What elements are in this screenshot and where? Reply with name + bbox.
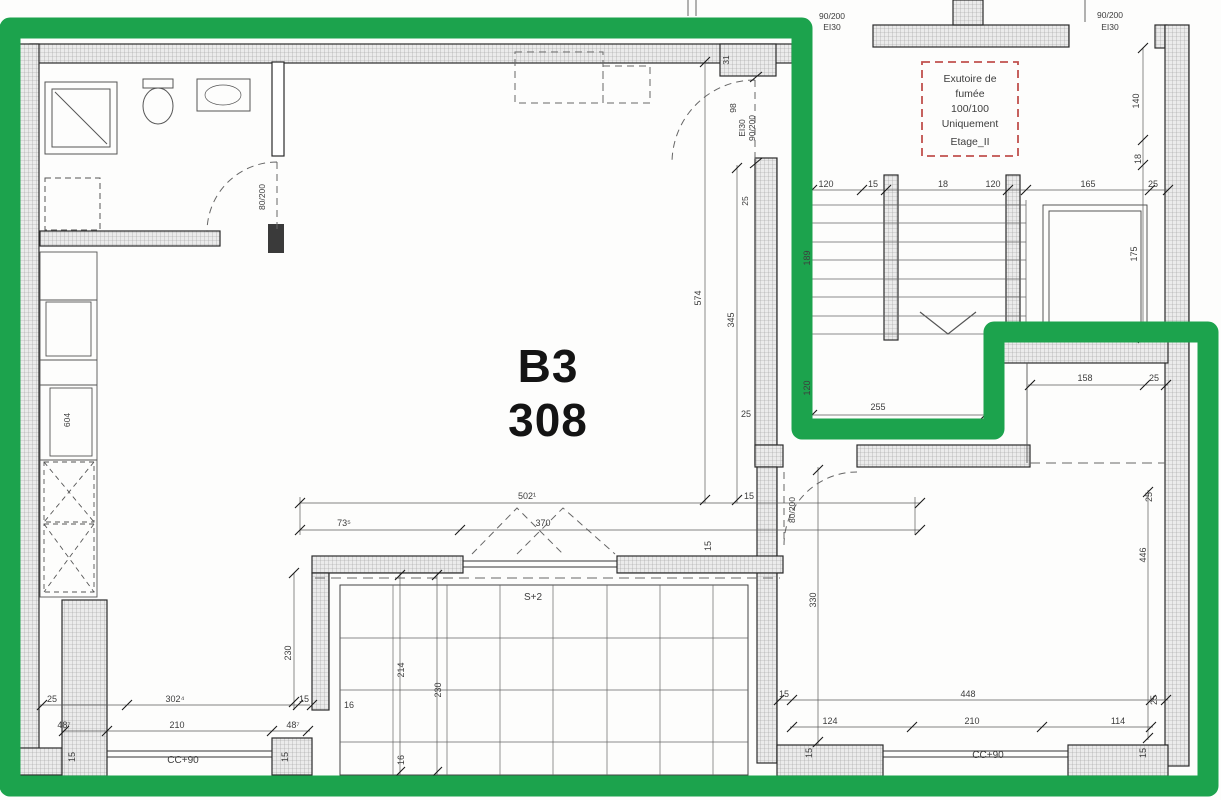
wall-between-units [757,467,777,763]
smoke-vent-annotation: Exutoire de fumée 100/100 Uniquement Eta… [922,62,1018,156]
wall-right-unit-band [998,340,1168,363]
dim-label: 31 [721,55,731,65]
kitchen-appliance [46,302,91,356]
balcony-label: S+2 [524,592,543,603]
dim-label: 25 [741,409,751,419]
window-sill-right-label: CC+90 [972,750,1004,761]
dim-label: 214 [396,662,406,677]
wall-stair-top [873,25,1069,47]
dim-label: 120 [818,179,833,189]
dim-label: 15 [280,752,290,762]
dim-label: 189 [802,250,812,265]
walls [17,0,1189,776]
dim-label: 165 [1080,179,1095,189]
unit-number: 308 [508,394,588,446]
unit-name: B3 [518,340,579,392]
floor-plan-drawing: Exutoire de fumée 100/100 Uniquement Eta… [0,0,1221,800]
stair-door-fire: EI30 [1101,22,1119,32]
stair-rail-right [1006,175,1020,340]
dim-label: 230 [433,682,443,697]
dim-label: 25 [1144,492,1154,502]
dim-label: 15 [779,689,789,699]
dim-label: 15 [1138,748,1148,758]
dim-label: 230 [283,645,293,660]
interior-door-size: 80/200 [787,497,797,523]
dim-label: 210 [964,716,979,726]
kitchen-unit-label: 604 [62,413,72,427]
wall-bath-right-stub [272,62,284,156]
counter-dividers [40,300,97,460]
dim-label: 302⁴ [166,694,185,704]
balcony-outline [340,585,748,775]
dim-label: 16 [344,700,354,710]
smoke-vent-line5: Etage_II [950,136,989,148]
wall-balcony-band-left [312,556,463,573]
floor-plan-page: Exutoire de fumée 100/100 Uniquement Eta… [0,0,1221,800]
dashed-elements [207,52,1165,578]
dim-label: 158 [1077,373,1092,383]
shower-diagonal [55,92,107,144]
wall-mid-band-left [755,445,783,467]
stair-steps [800,200,1026,340]
balcony-tile-grid [340,585,748,775]
dim-label: 48⁷ [57,720,70,730]
dim-label: 48⁷ [286,720,299,730]
windows [107,561,1068,757]
dim-label: 25 [740,196,750,206]
smoke-vent-line4: Uniquement [942,118,999,130]
dim-label: 574 [693,290,703,305]
dim-label: 255 [870,402,885,412]
dim-label: 345 [726,312,736,327]
wall-bath-bottom [40,231,220,246]
toilet [143,88,173,124]
wall-stair-top-stub [953,0,983,25]
dim-label: 120 [985,179,1000,189]
wall-top [30,44,792,63]
wall-bottom-left-corner [17,748,62,775]
dim-label: 15 [804,748,814,758]
wardrobe-2 [603,66,650,103]
wall-bottom-right-jamb-left [777,745,883,776]
dim-label: 18 [1133,154,1143,164]
wall-bottom-right-jamb-right [1068,745,1168,776]
washing-machine [45,178,100,230]
dim-label: 124 [822,716,837,726]
entry-door-width: 98 [728,103,738,113]
dim-label: 15 [868,179,878,189]
dim-label: 18 [938,179,948,189]
stair-direction-arrow [920,312,976,334]
dim-label: 120 [802,380,812,395]
balcony [340,585,748,775]
entry-door-size: 90/200 [747,115,757,141]
bathroom-fixtures [45,79,250,230]
dim-label: 25 [1149,373,1159,383]
dim-label: 15 [703,541,713,551]
wall-window-jamb [272,738,312,775]
smoke-vent-line3: 100/100 [951,103,989,115]
dim-label: 446 [1138,547,1148,562]
stair-rail-left [884,175,898,340]
entry-door-fire: EI30 [737,119,747,137]
dim-label: 25 [1148,179,1158,189]
balcony-glass-door [463,561,617,567]
dim-label: 15 [744,491,754,501]
unit-b3-highlight-outline [10,28,1208,786]
dim-label: 448 [960,689,975,699]
sliding-door-symbol [472,508,615,554]
wall-interior-right [755,158,777,465]
wall-window-stub-left [62,600,107,776]
stair-door-size: 90/200 [1097,10,1123,20]
sink-basin [205,85,241,105]
dim-label: 140 [1131,93,1141,108]
dim-label: 25 [1149,695,1159,705]
dim-label: 114 [1111,716,1125,726]
wall-mid-band-right [857,445,1030,467]
wall-balcony-left [312,573,329,710]
bath-door-size: 80/200 [257,184,267,210]
dim-label: 502¹ [518,491,536,501]
dim-label: 15 [67,752,77,762]
landing-door-fire: EI30 [823,22,841,32]
dim-label: 370 [535,518,550,528]
toilet-tank [143,79,173,88]
dim-label: 330 [808,592,818,607]
smoke-vent-line1: Exutoire de [943,73,996,85]
wall-bath-door-jamb [268,224,284,253]
dim-label: 25 [47,694,57,704]
dim-label: 210 [169,720,184,730]
window-sill-left-label: CC+90 [167,755,199,766]
smoke-vent-line2: fumée [955,88,984,100]
dim-label: 16 [396,755,406,765]
dim-label: 15 [299,694,309,704]
dim-label: 175 [1129,246,1139,261]
landing-door-size: 90/200 [819,11,845,21]
wall-right [1165,25,1189,766]
wall-balcony-band-right [617,556,783,573]
staircase [800,200,1026,340]
dim-label: 73⁵ [337,518,351,528]
